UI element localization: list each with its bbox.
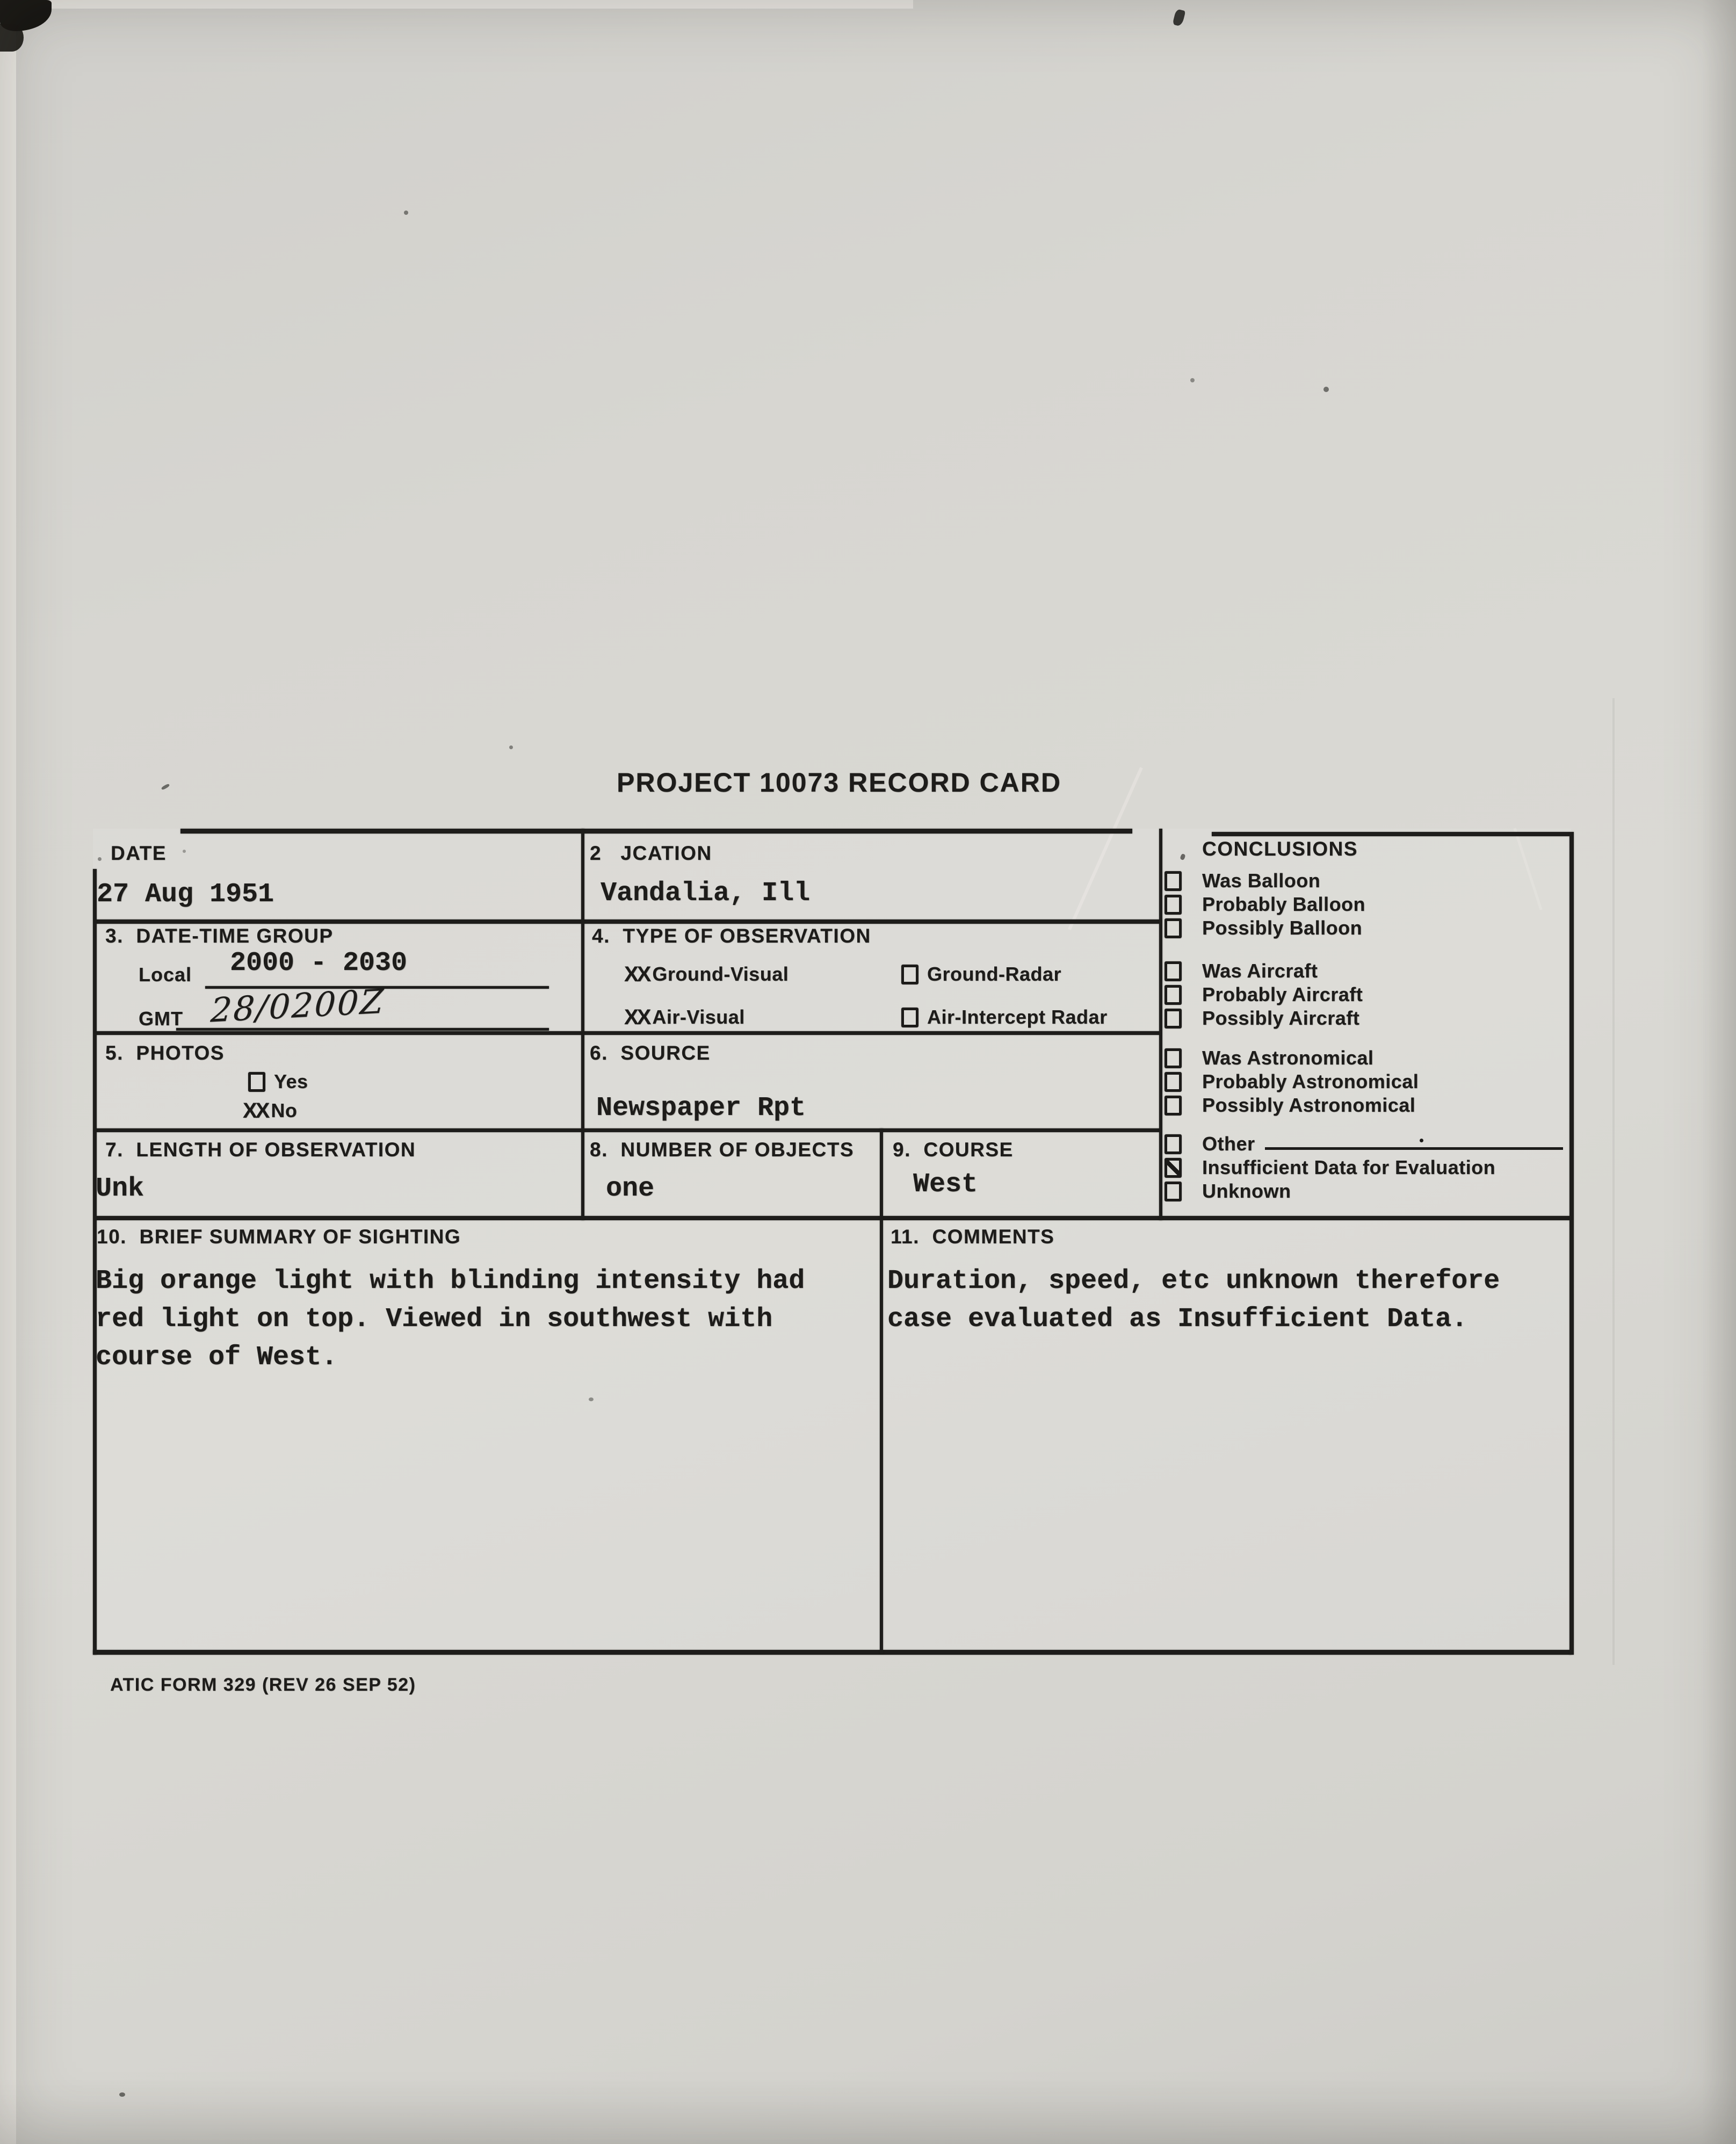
option-label: Ground-Visual — [652, 963, 789, 986]
conclusions-group-other: Other Insufficient Data for Evaluation U… — [1164, 1132, 1563, 1203]
conclusion-item-insufficient-data: Insufficient Data for Evaluation — [1164, 1156, 1563, 1179]
form-number-footer: ATIC FORM 329 (REV 26 SEP 52) — [110, 1675, 416, 1696]
conclusion-item: Possibly Astronomical — [1164, 1093, 1563, 1117]
comments-text: Duration, speed, etc unknown therefore c… — [887, 1262, 1500, 1338]
scan-speck — [404, 211, 408, 215]
option-air-visual: XX Air-Visual — [624, 1003, 745, 1031]
checkbox-icon — [1164, 1182, 1182, 1201]
scanned-record-card-page: PROJECT 10073 RECORD CARD DATE 27 Aug 19… — [0, 0, 1736, 2144]
course-value: West — [913, 1165, 978, 1204]
conclusions-label: CONCLUSIONS — [1202, 838, 1358, 860]
conclusions-divider — [1159, 829, 1162, 1220]
conclusions-group-aircraft: Was Aircraft Probably Aircraft Possibly … — [1164, 959, 1563, 1030]
option-label: Air-Intercept Radar — [927, 1006, 1108, 1028]
xx-mark: XX — [624, 962, 649, 987]
scan-speck — [1323, 387, 1329, 392]
checkbox-icon — [248, 1072, 265, 1092]
conclusion-item: Possibly Aircraft — [1164, 1006, 1563, 1030]
row-line-3 — [95, 1128, 1160, 1132]
checkbox-icon — [1164, 895, 1182, 915]
location-label: 2 JCATION — [590, 842, 712, 865]
scan-edge-top — [0, 0, 913, 9]
scan-shade-bottom — [0, 2077, 1736, 2144]
number-of-objects-value: one — [606, 1170, 654, 1208]
checkbox-icon — [1164, 985, 1182, 1005]
scan-streak — [1612, 698, 1615, 1665]
row-line-4 — [95, 1216, 1572, 1220]
local-time-value: 2000 - 2030 — [230, 944, 407, 982]
date-value: 27 Aug 1951 — [97, 875, 274, 914]
card-border-top — [180, 829, 1132, 834]
scan-speck — [1190, 378, 1195, 382]
course-label: 9. COURSE — [893, 1139, 1014, 1161]
option-photos-no: XX No — [243, 1097, 297, 1125]
scan-edge-left — [0, 0, 16, 2144]
scan-shade-right — [1702, 0, 1736, 2144]
checkbox-icon — [901, 1008, 918, 1027]
option-ground-visual: XX Ground-Visual — [624, 960, 789, 988]
conclusion-item: Possibly Balloon — [1164, 916, 1563, 940]
source-value: Newspaper Rpt — [596, 1089, 806, 1127]
conclusion-item: Unknown — [1164, 1179, 1563, 1203]
conclusion-item: Probably Aircraft — [1164, 983, 1563, 1006]
gmt-label: GMT — [139, 1008, 183, 1030]
conclusion-item: Was Balloon — [1164, 869, 1563, 893]
option-air-intercept-radar: Air-Intercept Radar — [901, 1003, 1108, 1031]
checkbox-icon — [1164, 1096, 1182, 1116]
conclusion-label: Was Astronomical — [1202, 1047, 1373, 1069]
conclusion-label: Probably Balloon — [1202, 893, 1365, 916]
checkbox-icon — [1164, 961, 1182, 981]
conclusion-item-other: Other — [1164, 1132, 1563, 1156]
conclusions-group-astronomical: Was Astronomical Probably Astronomical P… — [1164, 1046, 1563, 1117]
option-label: Air-Visual — [652, 1006, 744, 1028]
conclusion-label: Unknown — [1202, 1180, 1291, 1203]
scan-corner-blob-2 — [0, 24, 24, 52]
date-label: DATE — [111, 842, 167, 865]
conclusion-label: Probably Aircraft — [1202, 983, 1363, 1006]
middle-divider — [880, 1128, 883, 1654]
conclusion-label: Other — [1202, 1133, 1255, 1155]
conclusion-label: Insufficient Data for Evaluation — [1202, 1156, 1495, 1179]
brief-summary-text: Big orange light with blinding intensity… — [96, 1262, 805, 1377]
type-of-observation-label: 4. TYPE OF OBSERVATION — [592, 925, 871, 947]
option-label: Ground-Radar — [927, 963, 1061, 986]
checkbox-icon — [1164, 1134, 1182, 1154]
checkbox-icon — [1164, 1072, 1182, 1092]
other-underline — [1265, 1147, 1563, 1150]
scan-speck — [119, 2092, 125, 2097]
option-photos-yes: Yes — [248, 1068, 308, 1096]
xx-mark: XX — [624, 1005, 649, 1030]
conclusion-item: Probably Balloon — [1164, 893, 1563, 916]
local-label: Local — [139, 964, 192, 986]
xx-mark: XX — [243, 1099, 268, 1123]
checkbox-icon — [1164, 1048, 1182, 1068]
ink-dot — [1420, 1139, 1423, 1142]
card-border-bottom — [93, 1650, 1571, 1655]
conclusion-label: Was Aircraft — [1202, 960, 1318, 982]
scan-corner-blob — [0, 0, 52, 31]
length-of-observation-label: 7. LENGTH OF OBSERVATION — [105, 1139, 416, 1161]
scan-speck — [161, 783, 170, 790]
scan-speck — [1173, 9, 1186, 26]
location-value: Vandalia, Ill — [601, 874, 810, 912]
brief-summary-label: 10. BRIEF SUMMARY OF SIGHTING — [97, 1226, 461, 1248]
checkbox-icon — [1164, 918, 1182, 938]
option-label: Yes — [274, 1070, 308, 1093]
conclusion-item: Probably Astronomical — [1164, 1070, 1563, 1093]
comments-label: 11. COMMENTS — [891, 1226, 1054, 1248]
option-ground-radar: Ground-Radar — [901, 960, 1061, 988]
conclusion-label: Possibly Balloon — [1202, 917, 1362, 939]
option-label: No — [271, 1099, 297, 1122]
conclusion-label: Was Balloon — [1202, 870, 1320, 892]
conclusion-item: Was Astronomical — [1164, 1046, 1563, 1070]
conclusion-label: Probably Astronomical — [1202, 1070, 1419, 1093]
card-border-right — [1569, 832, 1574, 1655]
number-of-objects-label: 8. NUMBER OF OBJECTS — [590, 1139, 854, 1161]
checkbox-icon — [1164, 1158, 1182, 1178]
checkbox-icon — [901, 965, 918, 984]
source-label: 6. SOURCE — [590, 1042, 711, 1064]
page-title: PROJECT 10073 RECORD CARD — [617, 767, 1061, 798]
length-of-observation-value: Unk — [96, 1170, 144, 1208]
conclusions-group-balloon: Was Balloon Probably Balloon Possibly Ba… — [1164, 869, 1563, 940]
card-border-top-right — [1212, 832, 1569, 836]
column-divider-1 — [581, 829, 584, 1220]
checkbox-icon — [1164, 871, 1182, 891]
scan-speck — [509, 745, 513, 749]
row-line-1 — [95, 919, 1160, 924]
conclusion-label: Possibly Astronomical — [1202, 1094, 1415, 1117]
conclusion-label: Possibly Aircraft — [1202, 1007, 1359, 1030]
conclusion-item: Was Aircraft — [1164, 959, 1563, 983]
photos-label: 5. PHOTOS — [105, 1042, 225, 1064]
checkbox-icon — [1164, 1009, 1182, 1028]
row-line-2 — [95, 1031, 1160, 1035]
